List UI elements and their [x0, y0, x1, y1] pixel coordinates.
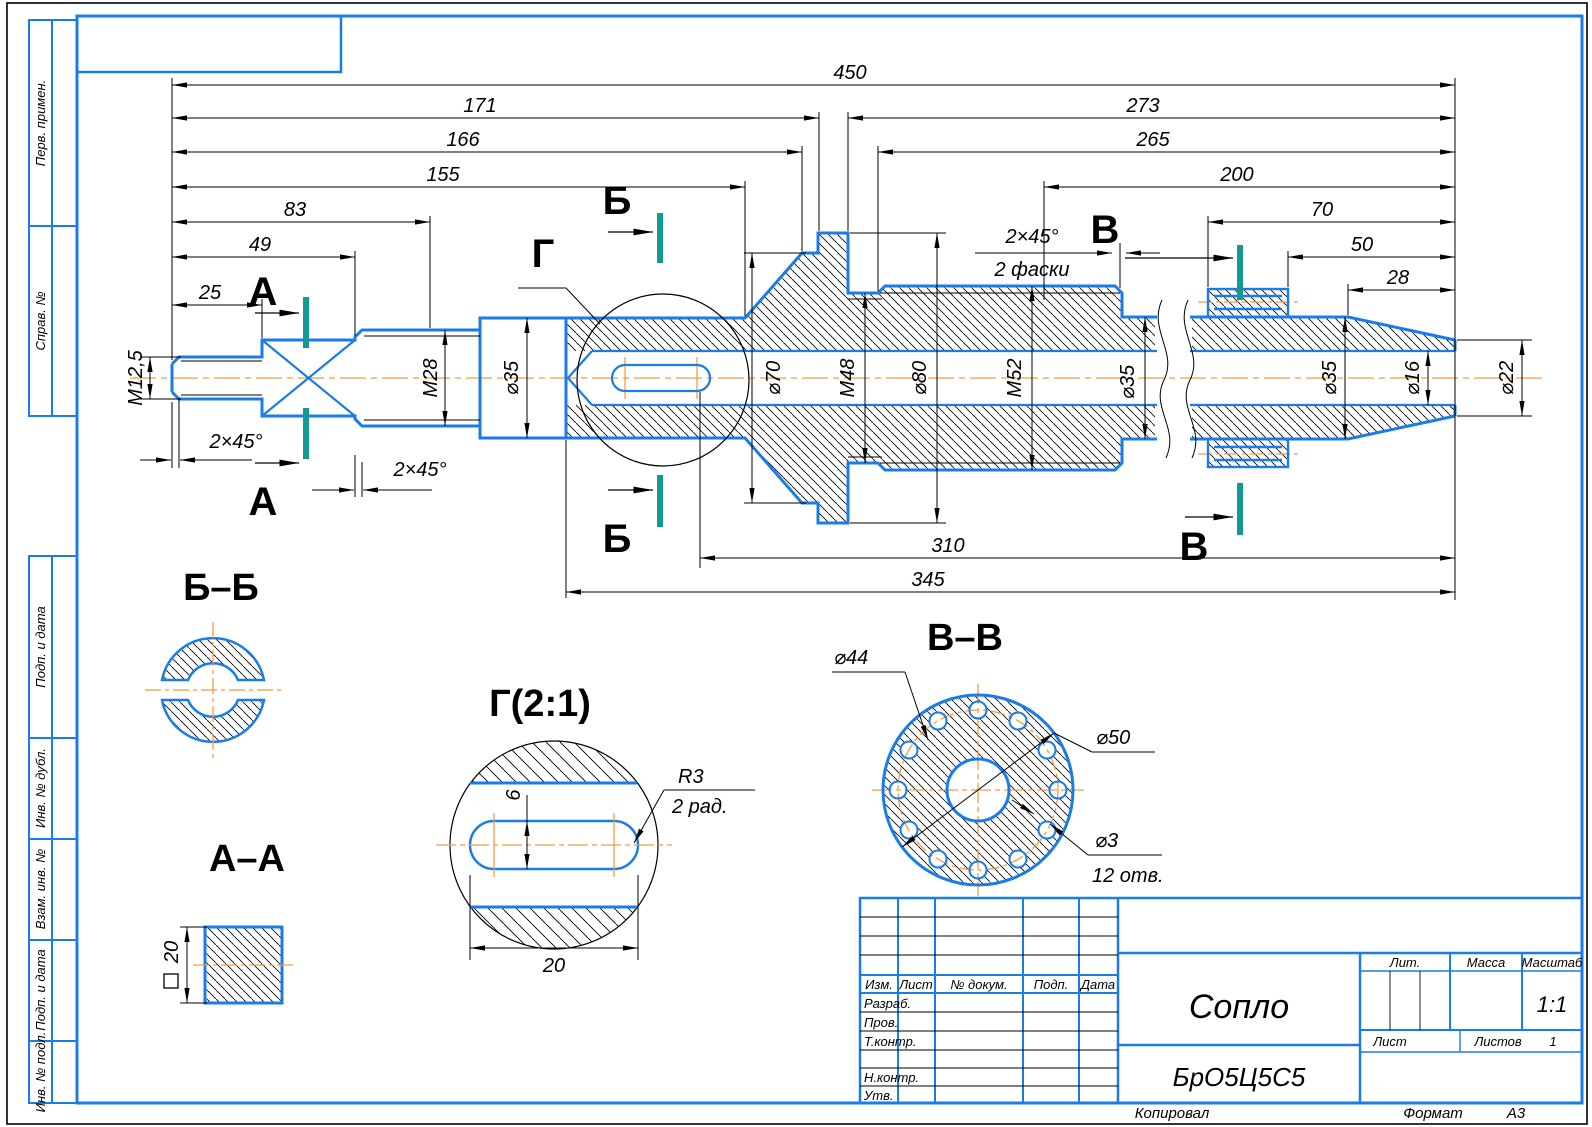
dim-310: 310 [931, 535, 964, 557]
dim-200: 200 [1219, 164, 1253, 186]
drawing-sheet: Перв. примен. Справ. № Подп. и дата Инв.… [0, 0, 1592, 1127]
tb-massa: Масса [1467, 955, 1505, 970]
view-g2-title: Г(2:1) [489, 683, 591, 725]
dim-vv-d50: ⌀50 [1096, 727, 1130, 749]
dim-345: 345 [911, 569, 945, 591]
cut-letter-b-bottom: Б [603, 517, 632, 561]
tb-listov: Листов [1473, 1034, 1522, 1049]
cut-letter-v-bottom: В [1180, 525, 1209, 569]
strip-label-podp1: Подп. и дата [33, 606, 48, 687]
cut-letter-b-top: Б [603, 179, 632, 223]
footer-format-value: А3 [1506, 1105, 1526, 1122]
dim-g2-r3-note: 2 рад. [671, 796, 728, 818]
footer: Копировал Формат А3 [1135, 1105, 1526, 1122]
strip-label-inv-dubl: Инв. № дубл. [33, 748, 48, 828]
cut-letter-a-bottom: А [249, 480, 278, 524]
dim-m28: М28 [420, 359, 442, 398]
tb-list: Лист [898, 977, 933, 992]
dim-d35-left: ⌀35 [1117, 364, 1139, 399]
title-block: Изм. Лист № докум. Подп. Дата Разраб. Пр… [860, 898, 1583, 1103]
dim-d70: ⌀70 [763, 361, 785, 395]
view-aa: А–А 20 [161, 838, 294, 1003]
dim-83: 83 [284, 199, 306, 221]
dim-d80: ⌀80 [909, 361, 931, 395]
dim-70: 70 [1311, 199, 1333, 221]
tb-razrab: Разраб. [864, 996, 911, 1011]
dim-171: 171 [463, 95, 496, 117]
tb-prov: Пров. [864, 1015, 898, 1030]
chamfer-right-label: 2×45° [1004, 226, 1058, 248]
chamfer-note-right: 2×45° 2 фаски [975, 226, 1160, 288]
square-symbol-icon [164, 974, 178, 988]
dim-g2-r3: R3 [678, 766, 704, 788]
dim-vv-count: 12 отв. [1092, 865, 1164, 887]
dim-d22: ⌀22 [1496, 361, 1518, 395]
drawing-canvas: Перв. примен. Справ. № Подп. и дата Инв.… [0, 0, 1592, 1127]
view-vv-title: В–В [927, 617, 1003, 659]
view-vv: В–В ⌀44 ⌀50 ⌀3 12 отв. [832, 617, 1164, 896]
dim-m52: М52 [1004, 359, 1026, 398]
view-bb: Б–Б [145, 567, 281, 758]
corner-box [77, 16, 341, 72]
dim-d16: ⌀16 [1402, 360, 1424, 395]
dim-273: 273 [1125, 95, 1159, 117]
dim-49: 49 [249, 234, 271, 256]
cut-marks: А А Б Б В В [249, 179, 1240, 569]
tb-izm: Изм. [865, 977, 893, 992]
dim-450: 450 [833, 62, 866, 84]
dim-g2-20: 20 [542, 955, 565, 977]
cut-letter-a-top: А [249, 270, 278, 314]
view-bb-title: Б–Б [183, 567, 259, 609]
tb-doc: № докум. [950, 977, 1007, 992]
chamfer-right-note: 2 фаски [993, 259, 1069, 281]
strip-label-vzam: Взам. инв. № [33, 849, 48, 929]
dim-d35-right: ⌀35 [1319, 360, 1341, 395]
detail-letter-g: Г [532, 232, 555, 276]
tb-podp: Подп. [1034, 977, 1069, 992]
cut-letter-v-top: В [1091, 208, 1120, 252]
chamfer-note-left: 2×45° [140, 398, 263, 468]
chamfer-m28-label: 2×45° [392, 459, 446, 481]
tb-material: БрО5Ц5С5 [1173, 1062, 1306, 1092]
tb-lit: Лит. [1389, 955, 1420, 970]
footer-copy: Копировал [1135, 1105, 1210, 1122]
dim-25: 25 [198, 282, 222, 304]
dim-m12-5: М12,5 [125, 349, 147, 405]
tb-listov-val: 1 [1549, 1034, 1556, 1049]
tb-data: Дата [1079, 977, 1115, 992]
tb-nkontr: Н.контр. [864, 1070, 919, 1085]
chamfer-note-m28: 2×45° [312, 455, 447, 497]
strip-label-podp2: Подп. и дата [33, 949, 48, 1030]
dim-aa-20: 20 [161, 941, 183, 964]
tb-tkontr: Т.контр. [864, 1034, 916, 1049]
left-strip [29, 20, 77, 1103]
tb-part-name: Сопло [1189, 988, 1289, 1026]
tb-list2: Лист [1372, 1034, 1407, 1049]
dim-166: 166 [446, 129, 480, 151]
tb-scale: 1:1 [1537, 992, 1568, 1017]
tb-masshtab: Масштаб [1522, 955, 1583, 970]
dim-155: 155 [426, 164, 460, 186]
break-lines [1158, 300, 1196, 458]
view-g2: Г(2:1) 6 20 R3 2 рад. [436, 683, 755, 977]
dim-265: 265 [1135, 129, 1170, 151]
footer-format-label: Формат [1403, 1105, 1463, 1122]
dim-d35-collar: ⌀35 [501, 360, 523, 395]
strip-label-sprav: Справ. № [33, 291, 48, 350]
strip-label-perv: Перв. примен. [33, 80, 48, 166]
dim-vv-d44: ⌀44 [834, 647, 868, 669]
view-aa-title: А–А [209, 838, 285, 880]
tb-utv: Утв. [863, 1088, 894, 1103]
left-strip-labels: Перв. примен. Справ. № Подп. и дата Инв.… [33, 80, 48, 1113]
dim-vv-d3: ⌀3 [1095, 830, 1118, 852]
dim-m48: М48 [837, 359, 859, 398]
detail-callout-g: Г [518, 232, 600, 324]
strip-label-inv-podl: Инв. № подл. [33, 1032, 48, 1113]
dim-50: 50 [1351, 234, 1373, 256]
chamfer-left-label: 2×45° [208, 431, 262, 453]
dim-g2-6: 6 [503, 789, 525, 801]
dim-28: 28 [1386, 267, 1409, 289]
